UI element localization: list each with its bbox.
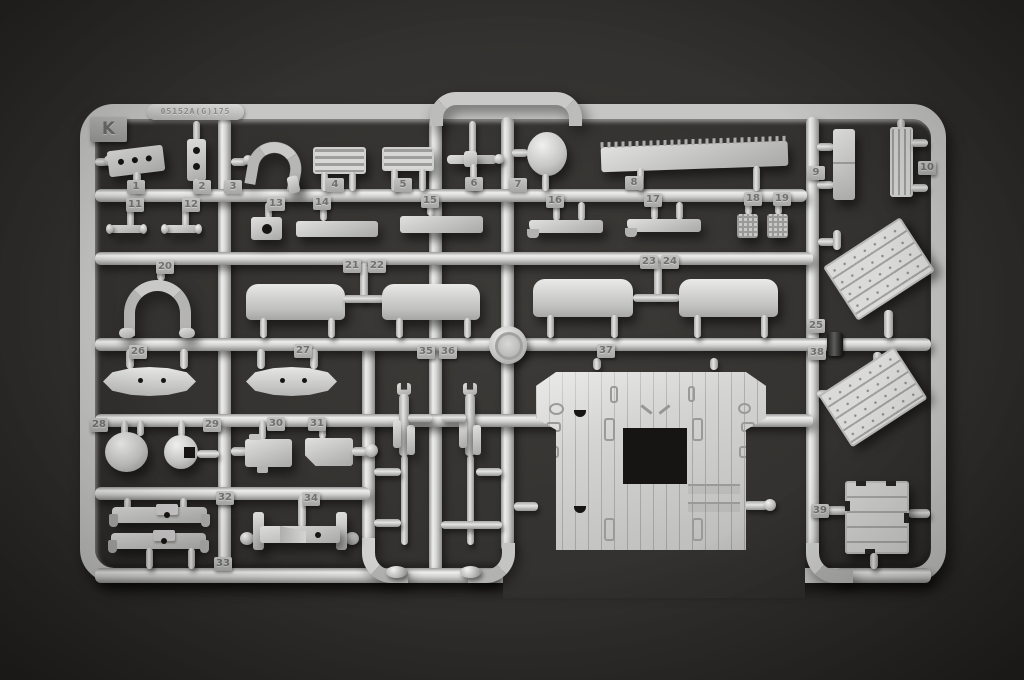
part-number-tag: 3 [224,180,242,194]
part-number-tag: 22 [368,259,386,273]
part-23-leg [547,315,554,338]
part-36-side-plate [459,420,467,448]
sprue-letter-plate: K [90,117,127,142]
part-10-stub [911,184,928,192]
logo-medallion [489,326,527,364]
part-number-tag: 24 [661,255,679,269]
part-15-tray [400,216,483,233]
part-21-bulwark-panel [246,284,345,320]
part-number-tag: 25 [807,319,825,333]
part-number-tag: 29 [203,418,221,432]
part-17-pin [676,202,683,220]
part-17-blade [627,219,701,232]
part-29-sphere [164,435,198,469]
part-33-cross-beam [111,533,206,549]
part-number-tag: 33 [214,557,232,571]
part-7-dome-blister [527,132,567,176]
gate-lump [460,566,481,578]
part-39-stub [908,509,930,518]
part-11-end [106,224,113,234]
part-number-tag: 1 [127,180,145,194]
part-21-link [343,295,385,303]
part-33-pin [188,548,195,569]
part-9-stub [817,181,834,189]
part-23-leg [611,315,618,338]
part-35-side-plate [407,425,415,455]
deck-square-opening [623,428,687,484]
part-10-ribbed-panel [890,127,913,197]
part-number-tag: 10 [918,161,936,175]
part-37-stub [514,502,538,511]
runner-vertical-5 [362,338,375,543]
part-26-lens-fairing [103,367,196,396]
part-21-leg [260,318,267,338]
embossed-code-plate: 05152A(G)175 [147,104,244,120]
part-36-crossbar [476,468,502,476]
part-12-end [195,224,202,234]
part-number-tag: 18 [744,192,762,206]
part-35-crossbar [408,414,432,422]
part-7-stem [542,174,549,191]
part-39-hatch-panel [845,481,909,554]
part-34-gate-ball [240,532,254,545]
part-20-foot [119,328,135,338]
part-number-tag: 4 [326,178,344,192]
part-number-tag: 9 [807,166,825,180]
part-31-mount-block [305,438,353,466]
part-37-pin [593,358,601,370]
part-36-lower-body [467,455,474,545]
part-25-arm [833,230,841,250]
part-22-bulwark-panel [382,284,480,320]
part-28-pin [137,420,144,436]
part-number-tag: 21 [343,259,361,273]
part-28-bowl [105,432,148,472]
davit-low-crossbar [441,521,502,529]
part-number-tag: 20 [156,260,174,274]
part-number-tag: 36 [439,345,457,359]
part-34-gate-ball [345,532,359,545]
part-5-grille-panel [382,147,434,171]
part-number-tag: 17 [644,193,662,207]
part-number-tag: 11 [126,198,144,212]
part-4-grille-panel [313,147,366,174]
part-number-tag: 19 [773,192,791,206]
part-number-tag: 37 [597,344,615,358]
part-number-tag: 6 [465,177,483,191]
part-22-leg [396,318,403,338]
logo-medallion-ring [495,332,523,360]
part-37-pin [710,358,718,370]
part-number-tag: 5 [394,178,412,192]
part-number-tag: 8 [625,176,643,190]
part-number-tag: 12 [182,198,200,212]
part-14-tray [296,221,378,237]
part-31-gate-ball [365,444,378,457]
part-5-leg [419,169,426,191]
part-number-tag: 34 [302,492,320,506]
part-39-pin [870,553,878,569]
part-number-tag: 2 [193,180,211,194]
part-number-tag: 30 [267,417,285,431]
part-2-holed-plate [187,139,206,181]
part-number-tag: 38 [808,346,826,360]
part-35-side-plate [393,420,401,448]
part-20-foot [179,328,195,338]
part-12-end [161,224,168,234]
sprue-photo: K 05152A(G)175 [0,0,1024,680]
part-36-crossbar [441,414,466,422]
part-12-tee-fitting [165,225,198,233]
part-23-link [633,294,680,302]
part-number-tag: 26 [129,345,147,359]
part-36-side-plate [473,425,481,455]
part-6-gate-ball [494,154,504,164]
part-33-pin [146,548,153,569]
part-number-tag: 15 [421,194,439,208]
part-number-tag: 39 [811,504,829,518]
part-7-stub [512,149,528,157]
part-11-end [140,224,147,234]
part-24-leg [694,315,701,338]
sprue-handle [430,92,582,126]
part-2-pin [193,121,200,141]
part-24-bulwark-panel [679,279,778,317]
part-35-crossbar [374,468,401,476]
bottom-rail-gap [503,556,805,598]
part-27-lens-fairing [246,367,337,396]
part-10-stub [911,139,928,147]
part-number-tag: 16 [546,194,564,208]
part-number-tag: 35 [417,345,435,359]
part-11-tee-fitting [110,225,143,233]
part-number-tag: 7 [509,178,527,192]
part-35-lower-body [401,455,408,545]
part-number-tag: 32 [216,491,234,505]
gate-lump [386,566,407,578]
part-number-tag: 31 [308,417,326,431]
part-number-tag: 27 [294,344,312,358]
part-number-tag: 28 [90,418,108,432]
part-9-flat-panel [833,129,855,200]
part-4-leg [349,172,356,191]
davit-low-crossbar [374,519,401,527]
runner-bottom-left [95,568,497,583]
part-24-leg [761,315,768,338]
dark-gate-mark [827,332,843,356]
part-23-bulwark-panel [533,279,633,317]
part-19-pedal [767,214,788,238]
part-34-beam [260,526,340,543]
part-18-pedal [737,214,758,238]
part-22-leg [464,318,471,338]
part-26-leg [180,349,188,369]
part-13-block [251,217,282,240]
part-37-gate-ball [764,499,776,511]
part-8-leg [753,166,760,191]
part-9-stub [817,143,834,151]
part-27-leg [257,349,265,369]
part-21-leg [328,318,335,338]
part-16-pin [578,202,585,221]
part-number-tag: 13 [267,197,285,211]
part-25-elbow [884,310,893,338]
part-16-blade [529,220,603,233]
part-32-cross-beam [112,507,207,523]
part-30-mount-block [245,439,292,467]
part-number-tag: 23 [640,255,658,269]
part-37-deck-panel [536,366,766,554]
part-number-tag: 14 [313,196,331,210]
runner-horizontal-2 [95,252,813,265]
part-29-stub [197,450,219,458]
